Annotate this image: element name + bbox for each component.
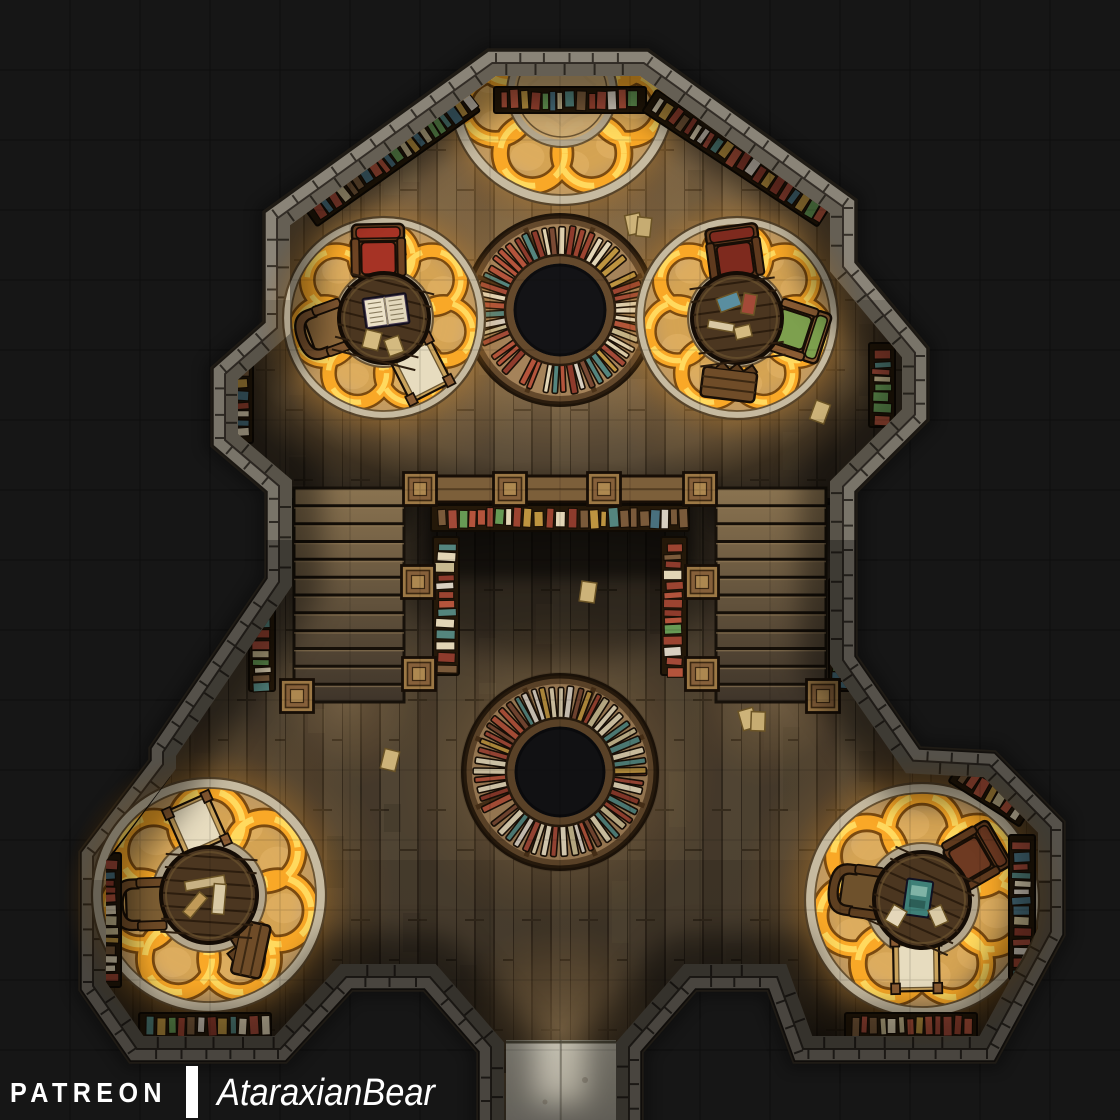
svg-text:AtaraxianBear: AtaraxianBear: [215, 1072, 436, 1114]
svg-text:PATREON: PATREON: [10, 1077, 167, 1108]
